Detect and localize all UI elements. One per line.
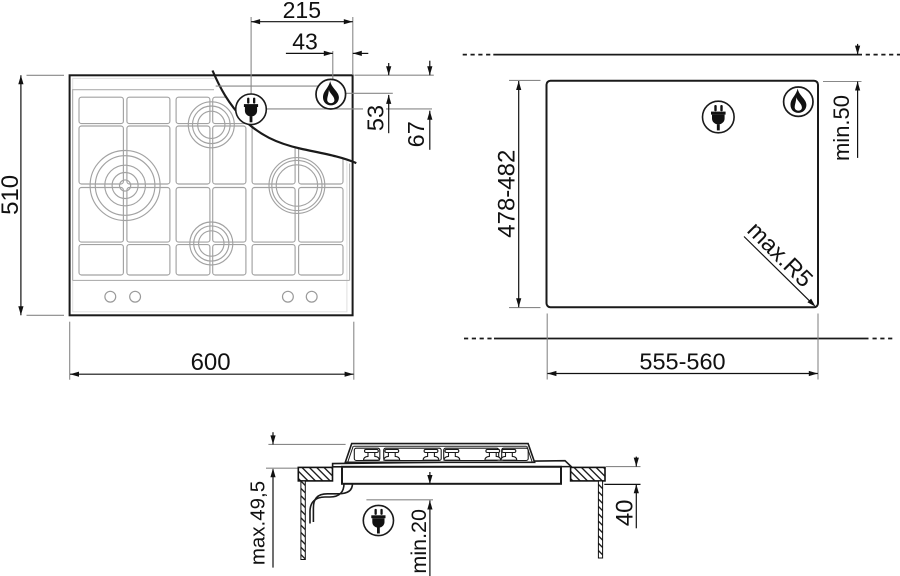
svg-text:max.49,5: max.49,5 — [246, 481, 269, 565]
svg-text:478-482: 478-482 — [493, 150, 520, 238]
svg-text:40: 40 — [611, 499, 638, 526]
svg-text:43: 43 — [292, 29, 318, 55]
svg-text:600: 600 — [191, 349, 231, 376]
svg-text:555-560: 555-560 — [639, 349, 725, 375]
svg-text:min.20: min.20 — [407, 509, 431, 574]
svg-text:215: 215 — [283, 0, 321, 23]
svg-text:max.R5: max.R5 — [742, 217, 818, 293]
svg-text:67: 67 — [403, 121, 429, 147]
svg-text:53: 53 — [363, 105, 389, 131]
svg-text:510: 510 — [0, 175, 24, 215]
svg-text:min.50: min.50 — [829, 95, 854, 161]
